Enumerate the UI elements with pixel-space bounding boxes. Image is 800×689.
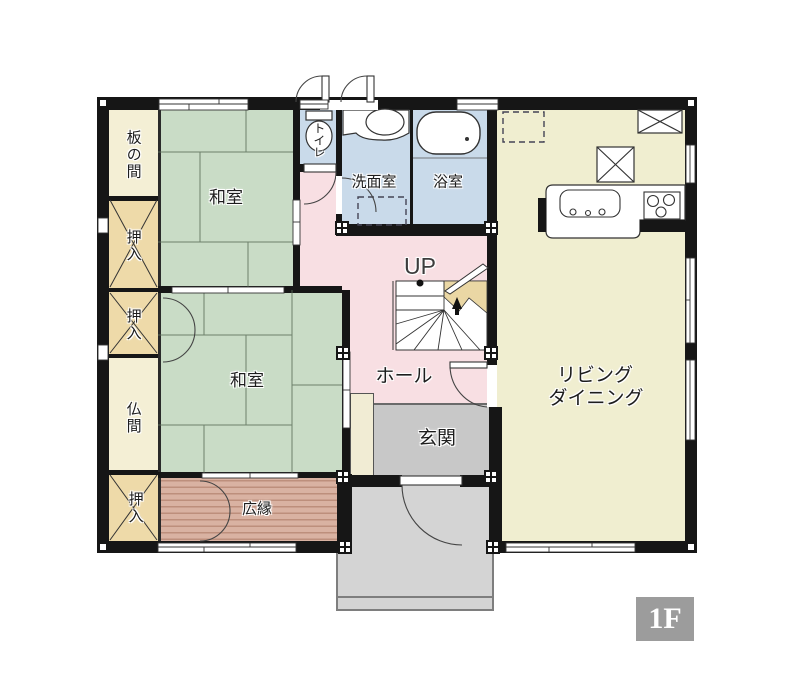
bathtub-icon [413,112,487,158]
up-start-dot [417,280,424,287]
wall-corner-mark [100,544,106,550]
kitchen-sink-icon [560,190,620,217]
pillar-mark [484,470,498,484]
stairs-up-label: UP [404,253,436,279]
floor-plan: 板の間 押入 押入 仏間 押入 和室 和室 トイレ 洗面室 浴室 UP ホール … [0,0,800,689]
stove-icon [644,192,680,219]
room-label-senmenshitsu: 洗面室 [351,173,396,190]
counter-back-wall [640,220,685,232]
pillar-mark [336,470,350,484]
room-label-itanoma: 板の間 [124,130,141,181]
pillar-mark [486,540,500,554]
washbasin-icon [343,109,409,140]
pillar-mark [484,221,498,235]
room-label-living-dining-line1: リビング [557,365,633,387]
pillar-mark [484,346,498,360]
room-label-butsuma: 仏間 [124,401,141,435]
room-label-genkan: 玄関 [418,428,456,450]
room-label-hiroen: 広縁 [242,500,272,517]
room-label-oshiire-3: 押入 [126,491,143,525]
room-label-hall: ホール [375,366,432,388]
wall-corner-mark [100,100,106,106]
kitchen-counter [538,185,685,238]
room-label-living-dining-line2: ダイニング [548,388,643,410]
room-label-washitsu-south: 和室 [230,371,264,391]
floor-badge: 1F [636,597,694,641]
room-label-oshiire-2: 押入 [124,308,141,342]
refrigerator-x-box [597,147,634,182]
room-label-toilet: トイレ [311,122,325,158]
wall-corner-mark [688,100,694,106]
wall-corner-mark [688,544,694,550]
fridge-space-dashed-box [503,112,544,142]
pillar-mark [335,221,349,235]
washer-space-dashed-box [358,197,406,225]
room-label-yokushitsu: 浴室 [433,173,463,190]
room-label-washitsu-north: 和室 [209,188,243,208]
cupboard-x-box [638,110,682,133]
counter-end-wall [538,198,546,232]
pillar-mark [338,540,352,554]
pillar-mark [336,346,350,360]
plan-overlay [0,0,800,689]
room-label-oshiire-1: 押入 [124,229,141,263]
